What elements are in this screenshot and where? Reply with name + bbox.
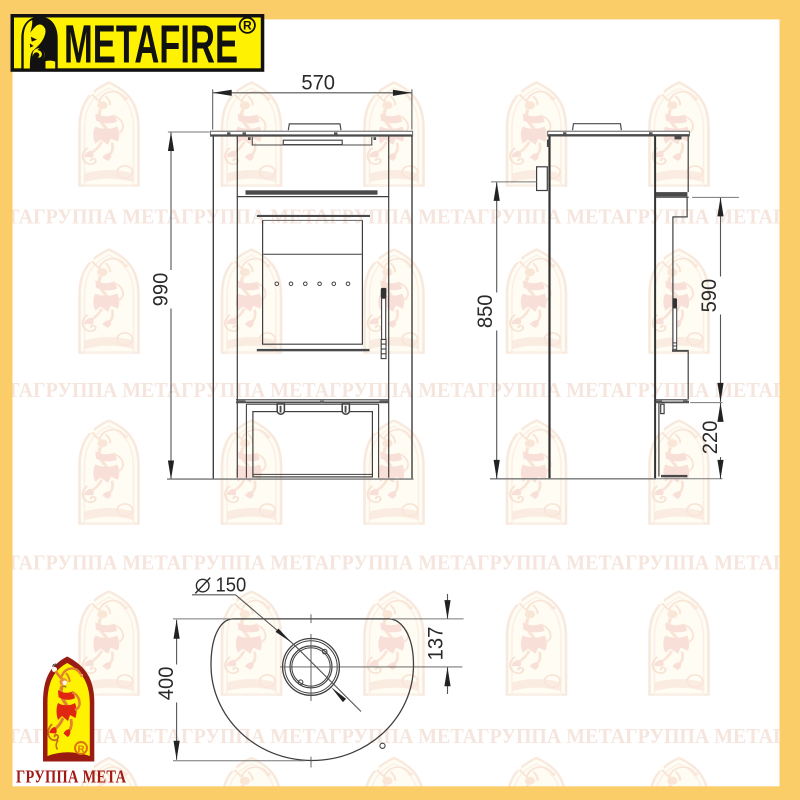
svg-text:400: 400 xyxy=(154,667,177,701)
svg-text:590: 590 xyxy=(698,279,721,313)
svg-text:METAFIRE: METAFIRE xyxy=(64,15,238,75)
svg-text:990: 990 xyxy=(149,273,172,307)
svg-text:R: R xyxy=(243,19,252,33)
svg-text:ГРУППА МЕТА: ГРУППА МЕТА xyxy=(16,768,126,787)
svg-text:850: 850 xyxy=(474,294,497,328)
svg-text:150: 150 xyxy=(216,573,247,596)
svg-text:220: 220 xyxy=(699,421,722,455)
svg-text:570: 570 xyxy=(301,71,335,94)
svg-text:137: 137 xyxy=(424,627,447,661)
svg-text:R: R xyxy=(78,744,85,755)
